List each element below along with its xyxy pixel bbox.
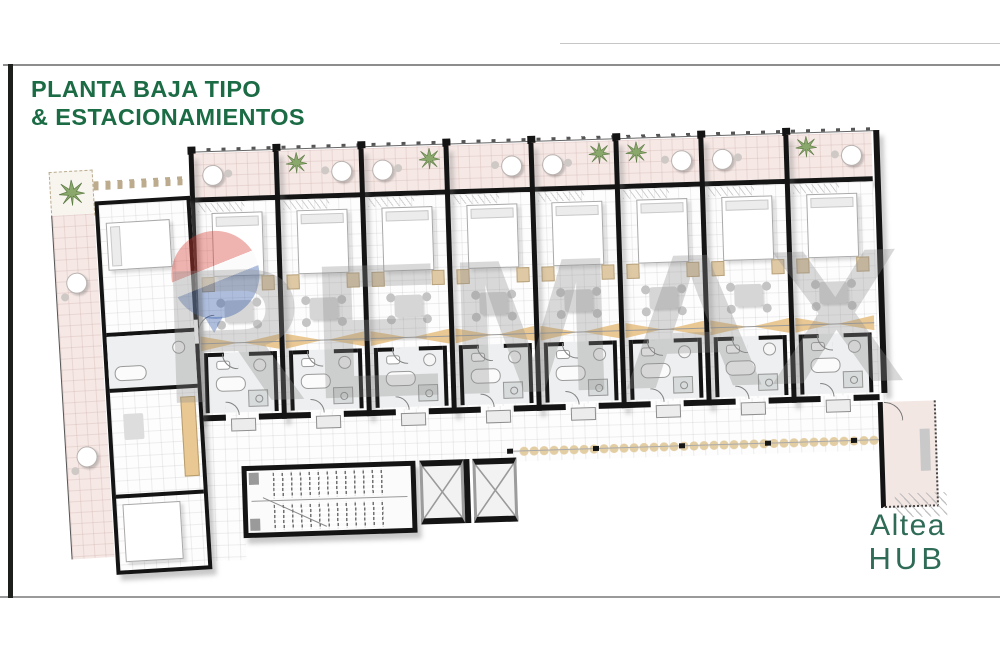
curtain-hatch — [623, 189, 669, 199]
balcony — [277, 148, 363, 195]
terrace-chair — [61, 293, 69, 301]
plant-icon — [418, 147, 442, 171]
interior-wall — [116, 490, 204, 499]
balcony-table — [501, 155, 523, 177]
bed-pillow — [470, 208, 513, 219]
stair-treads-upper — [273, 469, 384, 498]
balcony-chair — [734, 153, 742, 161]
page-title-line1: PLANTA BAJA TIPO — [31, 76, 305, 104]
bed — [122, 501, 183, 562]
curtain-hatch — [198, 202, 244, 212]
balcony — [362, 146, 448, 193]
bed-pillow — [725, 199, 768, 210]
floor-plan-slide: PLANTA BAJA TIPO & ESTACIONAMIENTOS — [0, 0, 1000, 667]
bathtub — [114, 365, 147, 382]
elevator-bank — [419, 458, 519, 525]
curtain-hatch — [368, 197, 414, 207]
bed-pillow — [810, 197, 853, 208]
plant-icon — [57, 178, 87, 208]
frame-top-line — [3, 64, 1000, 66]
balcony — [616, 138, 702, 185]
bed-pillow — [640, 202, 683, 213]
terrace-hatch — [93, 176, 187, 191]
brand-name-line1: Altea — [869, 511, 946, 541]
curtain-hatch — [793, 183, 839, 193]
left-accent-bar — [8, 64, 13, 598]
balcony-chair — [491, 161, 499, 169]
remax-text-watermark: REMAX — [158, 219, 910, 433]
plant-icon — [794, 135, 818, 159]
balcony — [192, 151, 278, 198]
terrace-table — [66, 272, 88, 294]
curtain-hatch — [538, 191, 584, 201]
brand-logo: Altea HUB — [869, 511, 946, 574]
elevator-shaft — [419, 459, 465, 524]
balcony — [531, 140, 617, 187]
balcony-chair — [394, 164, 402, 172]
stair-treads-lower — [274, 501, 385, 530]
plant-icon — [624, 140, 648, 164]
balcony — [701, 135, 787, 182]
table — [123, 413, 145, 440]
cabinet — [920, 429, 931, 471]
terrace-table — [76, 446, 98, 468]
page-title: PLANTA BAJA TIPO & ESTACIONAMIENTOS — [31, 76, 305, 131]
floor-plan: REMAX — [51, 122, 948, 584]
balcony-chair — [321, 166, 329, 174]
staircase — [241, 461, 417, 538]
balcony-table — [841, 145, 863, 167]
planter-box — [49, 170, 96, 219]
frame-bottom-line — [0, 596, 1000, 598]
brand-name-line2: HUB — [869, 543, 946, 574]
bed-pillow — [385, 210, 428, 221]
stair-corner-block — [249, 473, 259, 485]
bed-pillow — [301, 213, 344, 224]
balcony-table — [202, 165, 224, 187]
balcony-chair — [224, 169, 232, 177]
balcony-table — [712, 149, 734, 171]
balcony-table — [542, 154, 564, 176]
balcony — [786, 132, 872, 179]
balcony-table — [671, 150, 693, 172]
sheet-edge-line — [560, 43, 1000, 44]
curtain-hatch — [453, 194, 499, 204]
elevator-x-icon — [476, 464, 516, 517]
plant-icon — [587, 141, 611, 165]
stair-corner-block — [250, 519, 260, 531]
bed-pillow — [110, 226, 122, 267]
balcony-table — [372, 159, 394, 181]
plant-icon — [285, 151, 309, 175]
elevator-shaft — [472, 458, 518, 523]
bed-pillow — [216, 216, 259, 227]
elevator-x-icon — [423, 465, 463, 518]
curtain-hatch — [283, 199, 329, 209]
balcony-chair — [831, 150, 839, 158]
curtain-hatch — [708, 186, 754, 196]
elevator-divider-wall — [463, 459, 471, 523]
page-title-line2: & ESTACIONAMIENTOS — [31, 104, 305, 132]
balcony — [446, 143, 532, 190]
balcony-chair — [661, 156, 669, 164]
bed-pillow — [555, 205, 598, 216]
terrace-chair — [71, 467, 79, 475]
balcony-table — [331, 161, 353, 183]
balcony-chair — [564, 159, 572, 167]
